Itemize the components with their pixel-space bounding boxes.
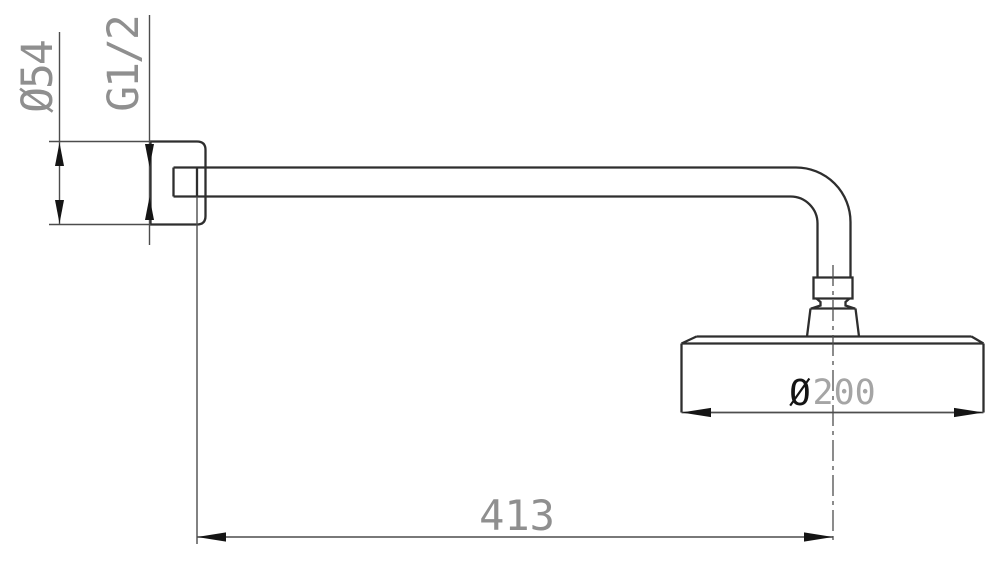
arrow-flange-top — [55, 143, 64, 167]
arrow-head-diameter-right — [954, 408, 984, 417]
arrow-arm-length-right — [804, 532, 833, 541]
arrow-head-diameter-left — [682, 408, 712, 417]
label-head-diameter-symbol: Ø — [789, 373, 811, 414]
label-head-diameter-value: 200 — [813, 373, 876, 413]
label-thread-size: G1/2 — [99, 16, 149, 112]
arm-outer-contour — [174, 168, 851, 278]
head-cone-left — [807, 309, 811, 337]
arrow-thread-top — [145, 144, 154, 167]
object-lines-group — [151, 142, 984, 413]
arm-inner-contour — [174, 197, 818, 278]
shower-arm-technical-drawing: Ø54 G1/2 Ø 200 413 — [0, 0, 1000, 570]
collar-left-profile — [812, 299, 821, 309]
drawing-canvas: Ø54 G1/2 Ø 200 413 — [0, 0, 1000, 570]
label-arm-length: 413 — [479, 491, 555, 540]
arrow-thread-bottom — [145, 197, 154, 220]
arrow-flange-bottom — [55, 200, 64, 224]
head-cone-right — [856, 309, 860, 337]
label-flange-diameter: Ø54 — [13, 41, 63, 113]
collar-right-profile — [846, 299, 855, 309]
dimension-lines-group — [49, 15, 984, 544]
arrowheads-group — [55, 143, 984, 542]
arrow-arm-length-left — [197, 532, 226, 541]
